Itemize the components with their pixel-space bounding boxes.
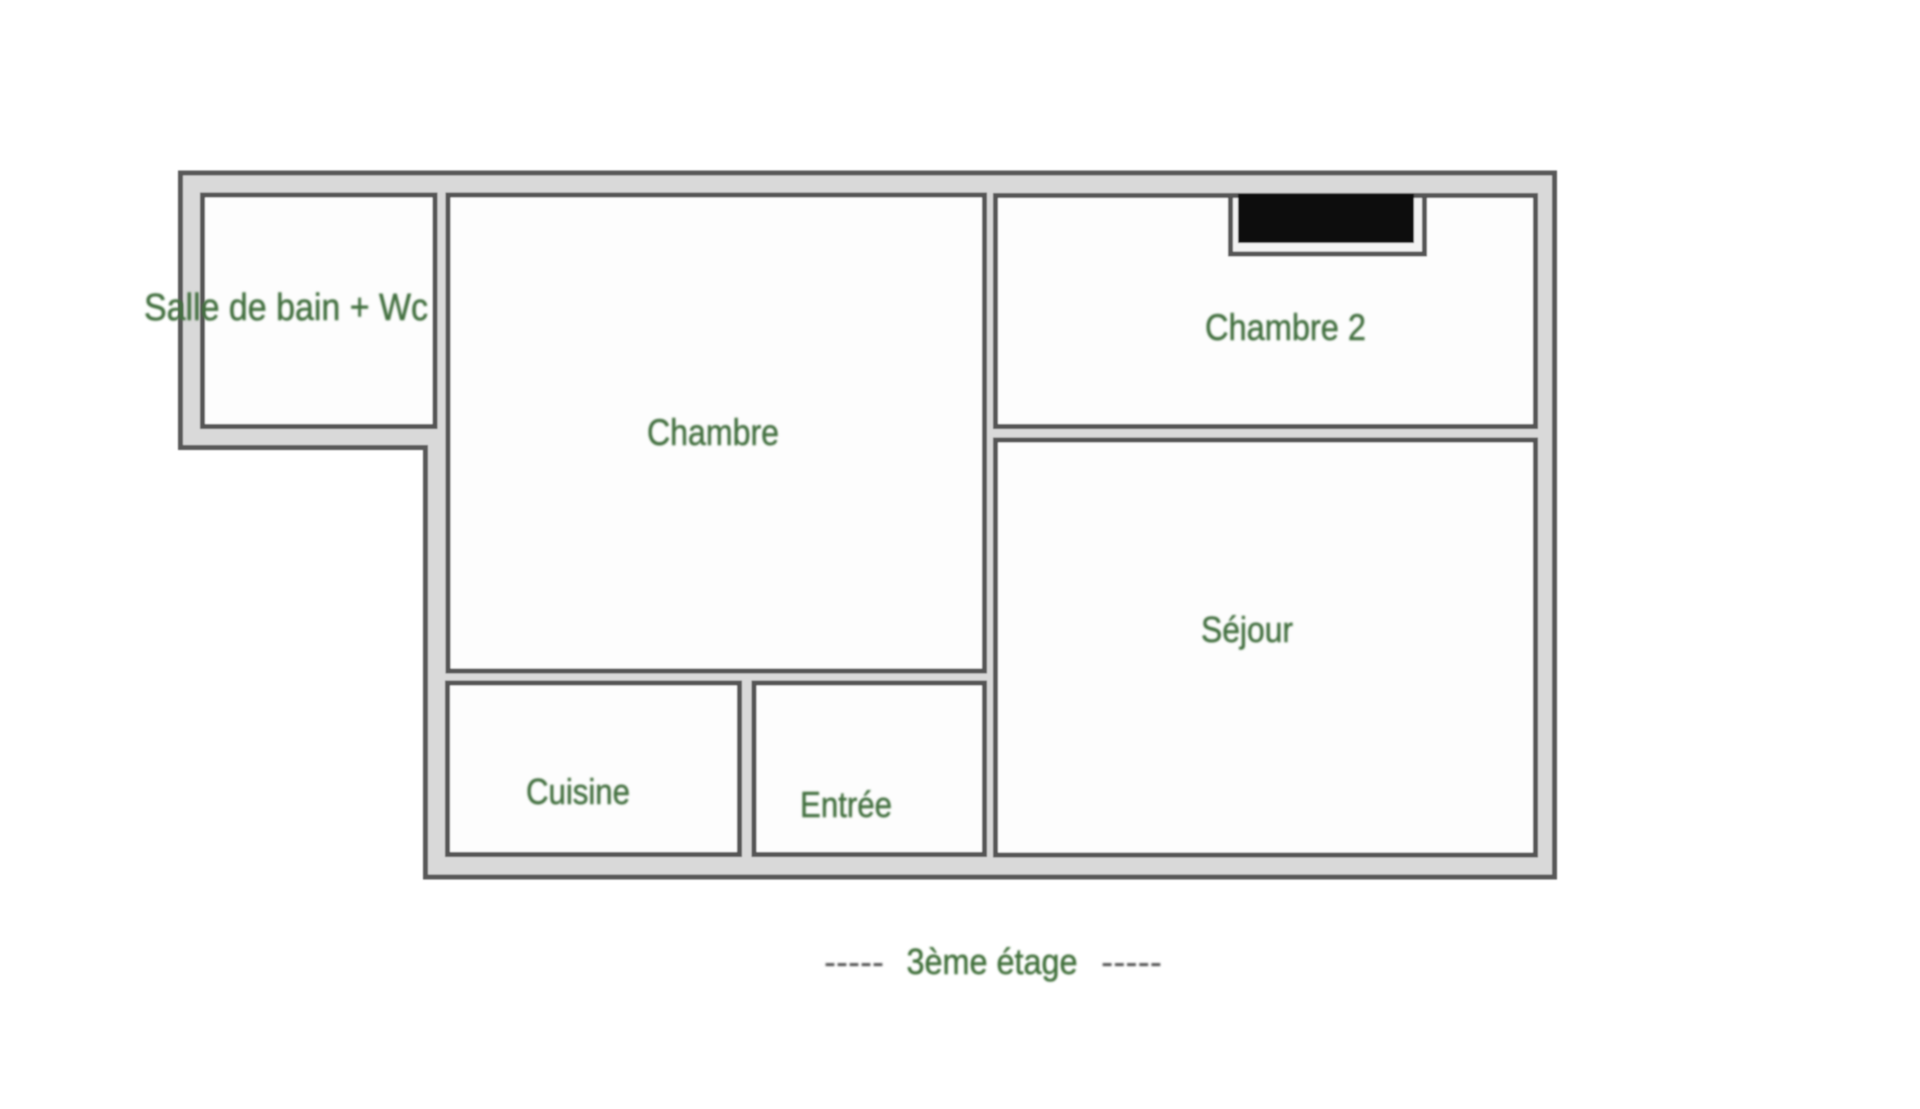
svg-text:Salle de bain + Wc: Salle de bain + Wc xyxy=(144,287,428,329)
svg-text:Entrée: Entrée xyxy=(800,784,892,825)
svg-text:Chambre 2: Chambre 2 xyxy=(1205,307,1366,348)
svg-text:Séjour: Séjour xyxy=(1201,609,1293,650)
svg-text:Chambre: Chambre xyxy=(647,412,779,453)
svg-text:-----: ----- xyxy=(1101,941,1162,982)
svg-text:3ème étage: 3ème étage xyxy=(907,941,1078,982)
svg-text:Cuisine: Cuisine xyxy=(526,771,630,812)
svg-text:-----: ----- xyxy=(824,941,884,982)
